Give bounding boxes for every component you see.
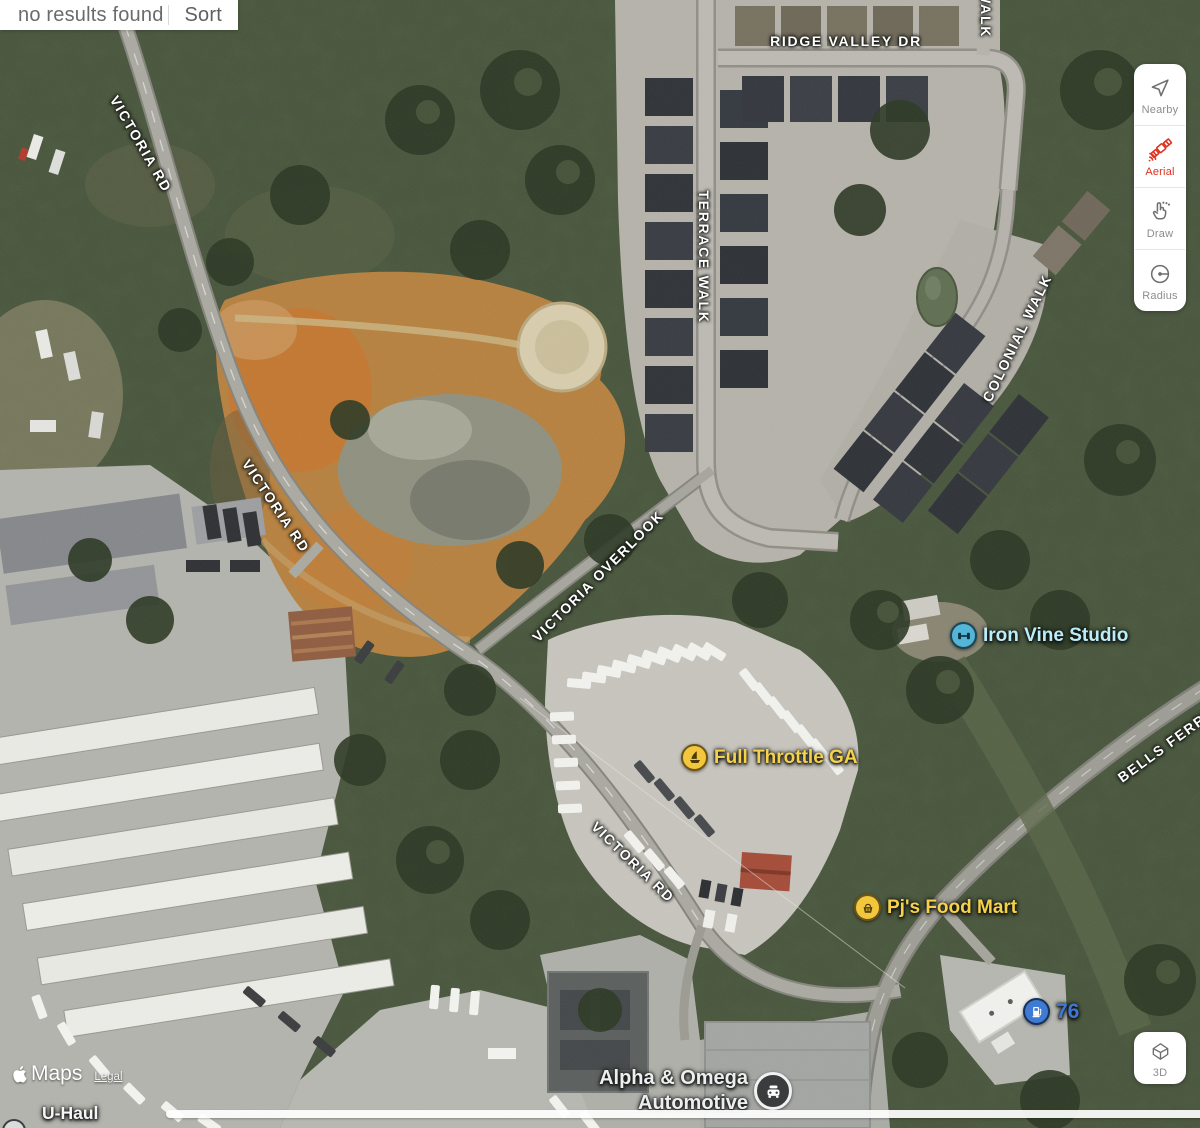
results-status: no results found: [0, 4, 168, 27]
nearby-button[interactable]: Nearby: [1134, 64, 1186, 125]
map-attribution: Maps Legal: [12, 1062, 123, 1088]
sailboat-icon: [681, 744, 708, 771]
draw-label: Draw: [1147, 228, 1173, 240]
aerial-label: Aerial: [1145, 166, 1174, 178]
legal-link[interactable]: Legal: [94, 1071, 122, 1083]
navigation-arrow-icon: [1148, 74, 1172, 102]
map-tool-panel: Nearby Aerial: [1134, 64, 1186, 311]
street-label-ridge-valley-dr: RIDGE VALLEY DR: [770, 33, 922, 49]
horizontal-scrollbar[interactable]: [166, 1110, 1200, 1118]
fuel-pump-icon: [1023, 998, 1050, 1025]
street-label-walk: WALK: [978, 0, 994, 38]
poi-name: 76: [1056, 1000, 1079, 1024]
poi-alpha-omega-automotive[interactable]: Alpha & Omega Automotive: [599, 1066, 792, 1116]
map-viewport[interactable]: WALK RIDGE VALLEY DR TERRACE WALK COLONI…: [0, 0, 1200, 1128]
shopping-basket-icon: [854, 894, 881, 921]
radius-tool-icon: [1148, 260, 1173, 288]
3d-button[interactable]: 3D: [1134, 1032, 1186, 1084]
car-repair-icon: [754, 1072, 792, 1110]
dumbbell-icon: [950, 622, 977, 649]
results-bar: no results found Sort: [0, 0, 238, 30]
maps-brand: Maps: [31, 1062, 82, 1086]
nearby-label: Nearby: [1142, 104, 1179, 116]
poi-name: U-Haul: [42, 1103, 98, 1124]
draw-button[interactable]: Draw: [1134, 188, 1186, 249]
poi-76-gas-station[interactable]: 76: [1023, 998, 1079, 1025]
aerial-button[interactable]: Aerial: [1134, 126, 1186, 187]
radius-button[interactable]: Radius: [1134, 250, 1186, 311]
pointing-hand-icon: [1148, 198, 1173, 226]
sort-button[interactable]: Sort: [169, 4, 238, 27]
satellite-icon: [1147, 136, 1173, 164]
poi-name: Iron Vine Studio: [983, 625, 1128, 647]
radius-label: Radius: [1142, 290, 1177, 302]
3d-house-icon: [1149, 1038, 1172, 1066]
apple-logo-icon: [12, 1065, 27, 1088]
poi-full-throttle-ga[interactable]: Full Throttle GA: [681, 744, 858, 771]
poi-pjs-food-mart[interactable]: Pj's Food Mart: [854, 894, 1017, 921]
poi-u-haul[interactable]: U-Haul: [42, 1103, 98, 1124]
poi-name: Pj's Food Mart: [887, 897, 1017, 919]
3d-label: 3D: [1153, 1067, 1167, 1079]
poi-iron-vine-studio[interactable]: Iron Vine Studio: [950, 622, 1128, 649]
street-label-terrace-walk: TERRACE WALK: [696, 190, 712, 323]
poi-name: Full Throttle GA: [714, 747, 858, 769]
poi-name-line1: Alpha & Omega: [599, 1066, 748, 1091]
